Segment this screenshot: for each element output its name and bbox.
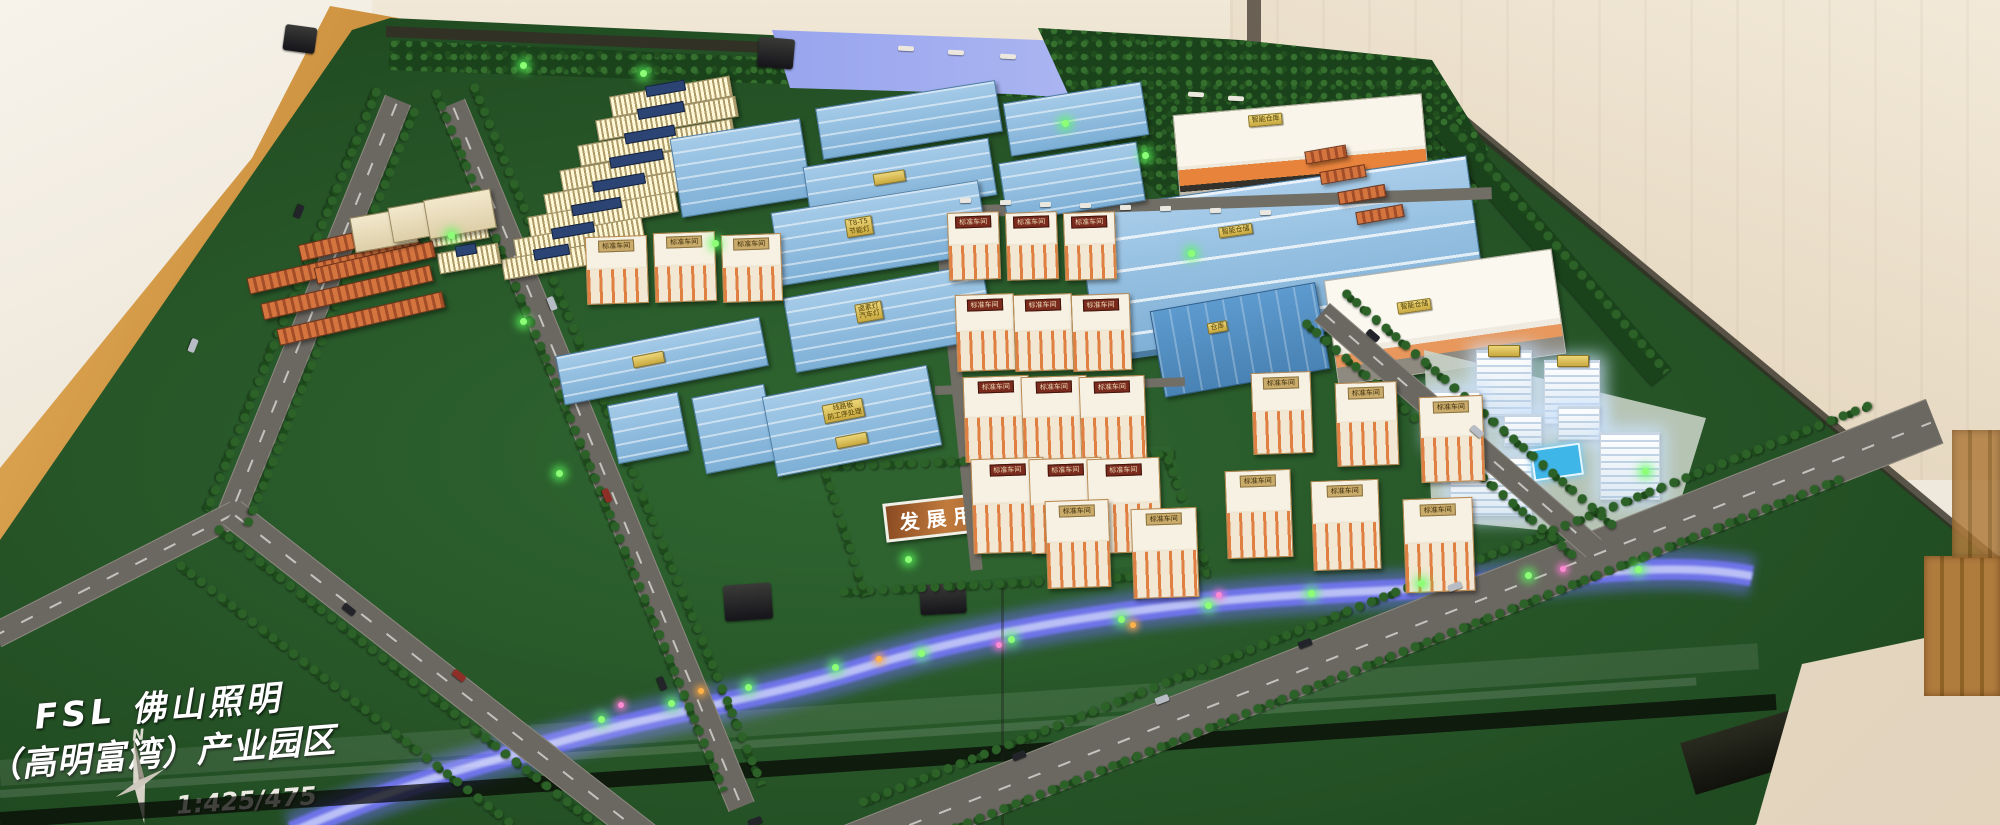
workshop-sign: 标准车间 xyxy=(1047,463,1083,476)
workshop-building: 标准车间 xyxy=(1251,371,1314,455)
workshop-building: 标准车间 xyxy=(1063,211,1117,281)
truck xyxy=(1080,203,1091,208)
landscape-led-light xyxy=(520,318,527,325)
building-sign-text: 智能仓储 xyxy=(1400,299,1429,311)
landscape-led-light xyxy=(1188,250,1195,257)
scale-model-photo: 智能仓库 智能仓储 仓库 智能仓储 发展用地 FSL 佛山照明 （高明富湾）产业… xyxy=(0,0,2000,825)
workshop-sign: 标准车间 xyxy=(598,240,634,253)
building-sign-text: 智能仓库 xyxy=(1251,114,1280,124)
landscape-led-light xyxy=(905,556,912,563)
workshop-sign: 标准车间 xyxy=(733,238,769,251)
workshop-building: 标准车间 xyxy=(947,211,1001,281)
workshop-building: 标准车间 xyxy=(1224,469,1293,559)
workshop-sign: 标准车间 xyxy=(1263,376,1299,389)
workshop-building: 标准车间 xyxy=(585,235,649,305)
workshop-sign: 标准车间 xyxy=(1071,216,1107,229)
flower-led-light xyxy=(996,642,1002,648)
truck xyxy=(1000,200,1011,205)
landscape-led-light xyxy=(1418,580,1425,587)
building-sign xyxy=(873,169,906,186)
workshop-building: 标准车间 xyxy=(1310,479,1381,571)
landscape-led-light xyxy=(1142,152,1149,159)
office-building xyxy=(1558,406,1600,440)
landscape-led-light xyxy=(1525,572,1532,579)
building-sign xyxy=(835,431,869,449)
building-sign-text: 汽车灯 xyxy=(859,309,881,321)
workshop-building: 标准车间 xyxy=(1071,293,1133,372)
workshop-building: 标准车间 xyxy=(1402,497,1475,593)
building-sign-text: 智能仓储 xyxy=(1221,224,1250,236)
workshop-building: 标准车间 xyxy=(653,231,717,303)
landscape-led-light xyxy=(556,470,563,477)
workshop-building: 标准车间 xyxy=(1013,293,1075,372)
truck xyxy=(1260,210,1271,215)
building-sign-text: 节能灯 xyxy=(848,224,870,235)
boat xyxy=(1000,54,1016,60)
workshop-sign: 标准车间 xyxy=(1059,505,1095,518)
truck xyxy=(1120,205,1131,210)
flower-led-light xyxy=(698,688,704,694)
truck xyxy=(960,198,971,203)
flower-led-light xyxy=(876,656,882,662)
workshop-sign: 标准车间 xyxy=(1146,513,1182,526)
landscape-led-light xyxy=(1008,636,1015,643)
truck xyxy=(1040,202,1051,207)
flower-led-light xyxy=(618,702,624,708)
building-sign: T8-T5节能灯 xyxy=(844,215,874,238)
landscape-led-light xyxy=(712,240,719,247)
building-sign: 仓库 xyxy=(1207,320,1229,335)
landscape-led-light xyxy=(1205,602,1212,609)
table-leg-wood xyxy=(1924,556,2000,696)
glass-clip xyxy=(282,24,317,54)
workshop-sign: 标准车间 xyxy=(1433,401,1469,414)
workshop-building: 标准车间 xyxy=(721,233,783,303)
workshop-sign: 标准车间 xyxy=(666,236,702,249)
building-sign: 智能仓储 xyxy=(1397,298,1432,314)
building-sign-text: 仓库 xyxy=(1210,321,1225,331)
landscape-led-light xyxy=(745,684,752,691)
building-sign: 智能仓储 xyxy=(1218,222,1253,238)
workshop-sign: 标准车间 xyxy=(1082,298,1118,311)
workshop-building: 标准车间 xyxy=(1005,211,1059,281)
flower-led-light xyxy=(1560,566,1566,572)
table-leg-wood xyxy=(1952,430,2000,558)
landscape-led-light xyxy=(918,650,925,657)
truck xyxy=(1210,208,1221,213)
landscape-led-light xyxy=(520,62,527,69)
workshop-sign: 标准车间 xyxy=(955,216,991,229)
roof-sign xyxy=(455,243,478,258)
landscape-led-light xyxy=(640,70,647,77)
workshop-sign: 标准车间 xyxy=(1105,463,1141,476)
landscape-led-light xyxy=(1062,120,1069,127)
boat xyxy=(1188,92,1204,98)
workshop-sign: 标准车间 xyxy=(1094,381,1130,394)
boat xyxy=(948,50,964,56)
workshop-building: 标准车间 xyxy=(1419,395,1486,483)
glass-clip xyxy=(757,36,795,69)
workshop-building: 标准车间 xyxy=(955,293,1017,372)
landscape-led-light xyxy=(1308,590,1315,597)
landscape-led-light xyxy=(668,700,675,707)
workshop-sign: 标准车间 xyxy=(1013,216,1049,229)
building-sign: 智能仓库 xyxy=(1248,113,1283,127)
workshop-building: 标准车间 xyxy=(1079,375,1148,463)
building-sign xyxy=(632,351,666,369)
glass-clip xyxy=(723,582,773,621)
workshop-sign: 标准车间 xyxy=(978,381,1014,394)
workshop-sign: 标准车间 xyxy=(1240,475,1276,488)
building-sign: 线路板前工序处理 xyxy=(822,398,866,424)
flower-led-light xyxy=(1216,592,1222,598)
truck xyxy=(1160,206,1171,211)
landscape-led-light xyxy=(832,664,839,671)
landscape-led-light xyxy=(1118,616,1125,623)
landscape-led-light xyxy=(1642,468,1649,475)
workshop-sign: 标准车间 xyxy=(966,298,1002,311)
flower-led-light xyxy=(1130,622,1136,628)
workshop-sign: 标准车间 xyxy=(989,463,1025,476)
building-sign: 卤素灯汽车灯 xyxy=(854,300,884,323)
landscape-led-light xyxy=(1635,566,1642,573)
boat xyxy=(1228,96,1244,102)
workshop-building: 标准车间 xyxy=(1335,381,1400,467)
workshop-building: 标准车间 xyxy=(1044,499,1111,589)
workshop-sign: 标准车间 xyxy=(1348,386,1384,399)
workshop-building: 标准车间 xyxy=(1130,507,1199,599)
landscape-led-light xyxy=(598,716,605,723)
workshop-sign: 标准车间 xyxy=(1036,381,1072,394)
workshop-sign: 标准车间 xyxy=(1024,298,1060,311)
workshop-sign: 标准车间 xyxy=(1327,485,1363,498)
boat xyxy=(898,46,914,52)
workshop-sign: 标准车间 xyxy=(1420,503,1456,516)
landscape-led-light xyxy=(448,232,455,239)
